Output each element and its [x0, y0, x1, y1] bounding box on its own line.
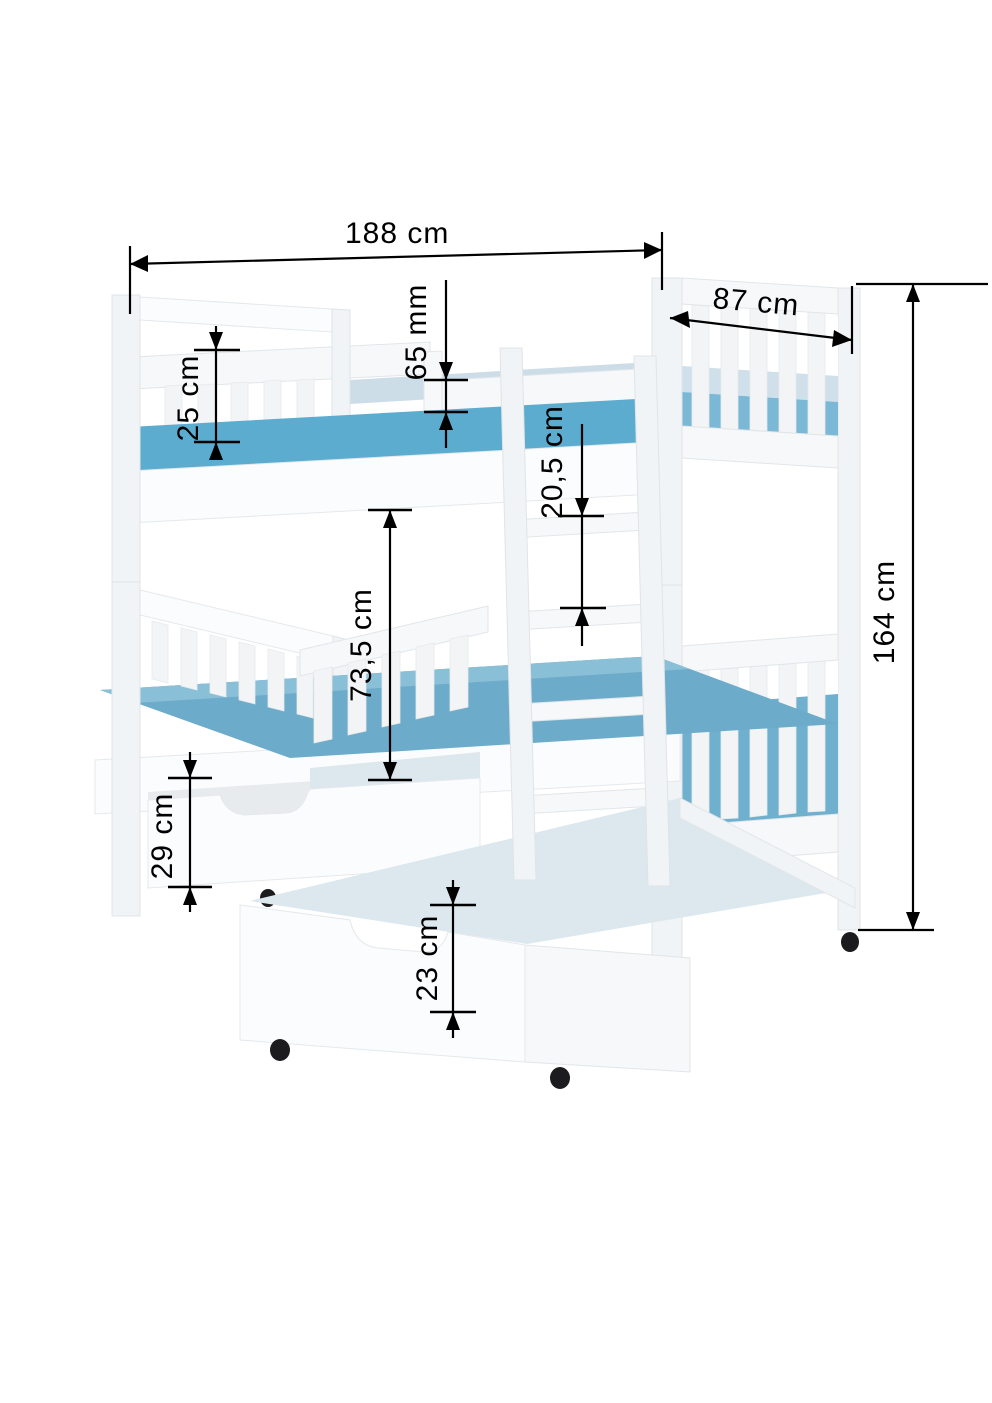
dim-label-rung-spacing: 20,5 cm [536, 405, 569, 519]
dim-label-guard-board: 65 mm [400, 284, 433, 381]
dim-label-overall-length: 188 cm [345, 217, 449, 250]
caster-drawer-pullout-2 [550, 1067, 570, 1089]
caster-drawer-pullout-1 [270, 1039, 290, 1061]
dim-label-bunk-clearance: 73,5 cm [345, 588, 378, 702]
dim-label-guard-height: 25 cm [172, 355, 205, 442]
dim-label-drawer-left-height: 29 cm [146, 793, 179, 880]
rear-right-post [838, 288, 860, 952]
dim-label-overall-height: 164 cm [868, 560, 901, 664]
bunk-bed-technical-drawing: 188 cm 87 cm 65 mm 25 cm [0, 0, 992, 1403]
caster-rear-right [841, 932, 859, 952]
drawer-pullout-side [525, 945, 690, 1072]
dim-label-drawer-pullout-depth: 23 cm [411, 915, 444, 1002]
dim-overall-length: 188 cm [130, 217, 662, 314]
left-front-post [112, 295, 140, 916]
technical-drawing-page: 188 cm 87 cm 65 mm 25 cm [0, 0, 992, 1403]
dim-overall-height: 164 cm [856, 284, 988, 930]
bed-frame [95, 278, 860, 1089]
